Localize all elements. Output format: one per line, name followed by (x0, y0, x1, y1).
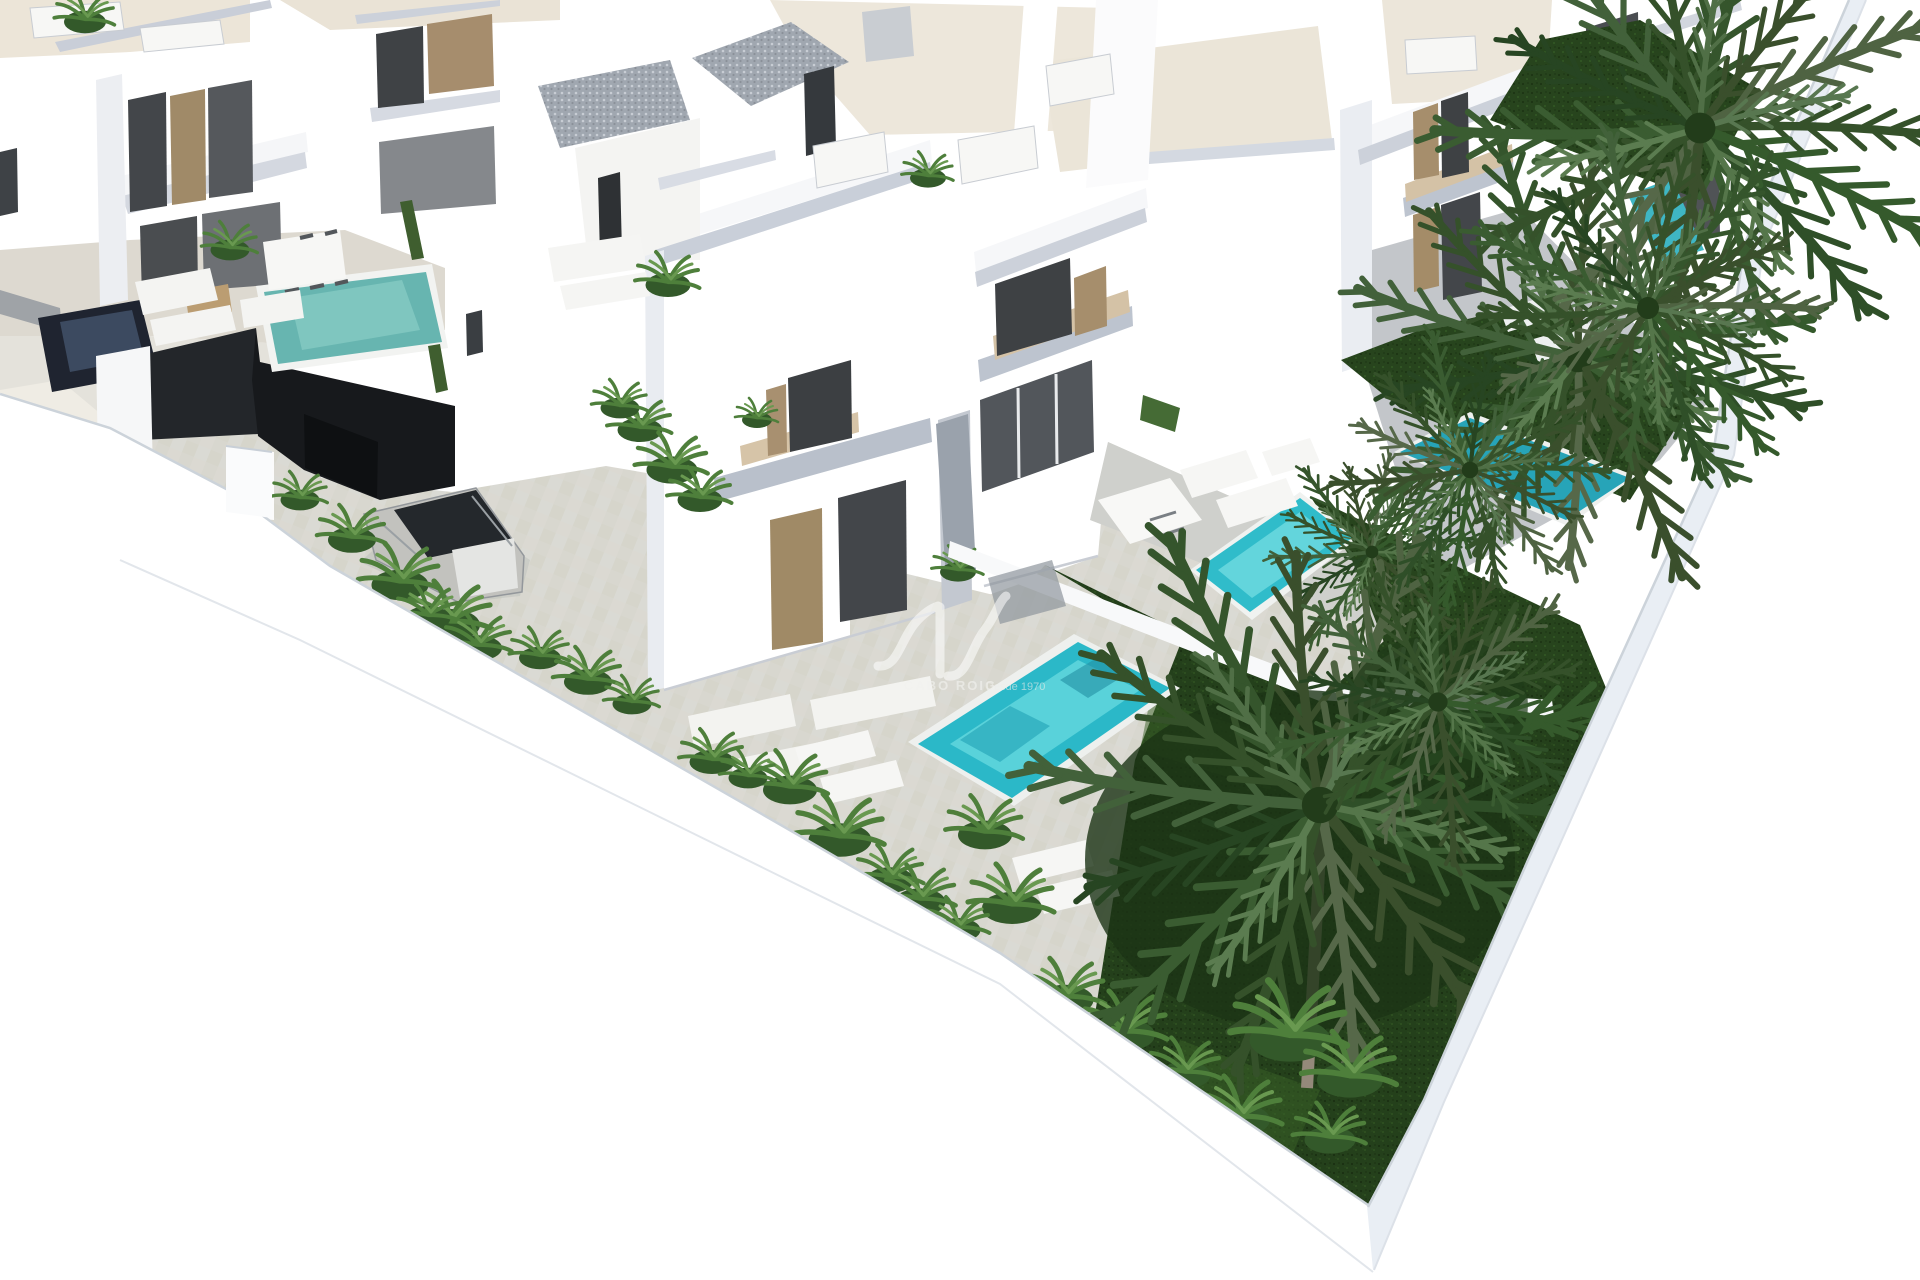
svg-text:Desde 1970: Desde 1970 (986, 681, 1045, 693)
svg-text:CABO ROIG: CABO ROIG (904, 678, 997, 693)
